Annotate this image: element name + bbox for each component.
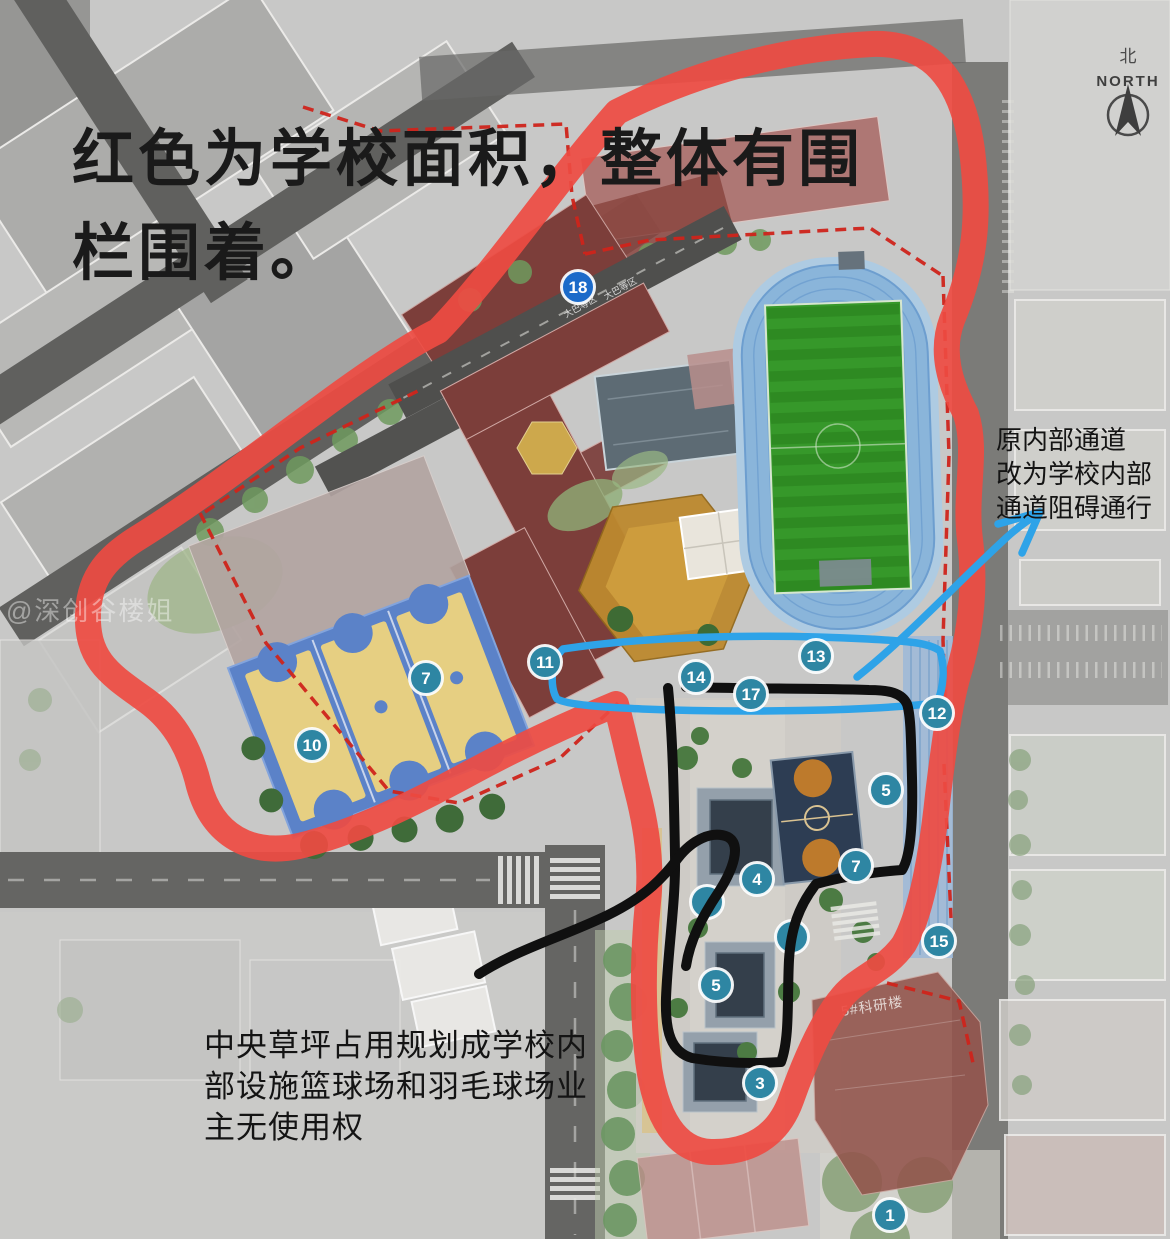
site-plan-image: 5#科研楼 大巴等区 大巴等区 18111413 bbox=[0, 0, 1170, 1239]
map-marker: 15 bbox=[923, 925, 956, 958]
note-passage-line1: 原内部通道 bbox=[996, 425, 1126, 455]
svg-text:12: 12 bbox=[928, 704, 947, 723]
map-marker: 14 bbox=[680, 661, 713, 694]
svg-text:4: 4 bbox=[752, 870, 762, 889]
note-lawn-line3: 主无使用权 bbox=[204, 1110, 364, 1145]
map-marker: 17 bbox=[735, 678, 768, 711]
svg-text:13: 13 bbox=[807, 647, 826, 666]
note-lawn-line1: 中央草坪占用规划成学校内 bbox=[204, 1028, 588, 1063]
map-marker: 11 bbox=[529, 646, 562, 679]
svg-text:7: 7 bbox=[851, 857, 860, 876]
map-marker: 1 bbox=[874, 1199, 907, 1232]
note-school-area-line1: 红色为学校面积，整体有围 bbox=[72, 125, 864, 194]
map-marker: 10 bbox=[296, 729, 329, 762]
compass-cn-label: 北 bbox=[1120, 47, 1137, 66]
svg-text:10: 10 bbox=[303, 736, 322, 755]
watermark: @深创谷楼姐 bbox=[6, 596, 174, 626]
map-marker: 5 bbox=[870, 774, 903, 807]
svg-text:5: 5 bbox=[881, 781, 890, 800]
map-marker: 13 bbox=[800, 640, 833, 673]
map-marker: 7 bbox=[840, 850, 873, 883]
svg-text:7: 7 bbox=[421, 669, 430, 688]
svg-text:11: 11 bbox=[536, 653, 554, 672]
svg-text:15: 15 bbox=[930, 932, 949, 951]
note-passage-line2: 改为学校内部 bbox=[996, 459, 1152, 489]
svg-text:1: 1 bbox=[885, 1206, 894, 1225]
map-marker: 18 bbox=[562, 271, 595, 304]
map-marker: 5 bbox=[700, 969, 733, 1002]
map-marker: 4 bbox=[741, 863, 774, 896]
note-school-area-line2: 栏围着。 bbox=[72, 219, 336, 288]
svg-text:17: 17 bbox=[742, 685, 761, 704]
annotated-site-plan: 5#科研楼 大巴等区 大巴等区 18111413 bbox=[0, 0, 1170, 1239]
note-lawn-line2: 部设施篮球场和羽毛球场业 bbox=[204, 1069, 588, 1104]
map-marker: 12 bbox=[921, 697, 954, 730]
map-marker: 7 bbox=[410, 662, 443, 695]
svg-text:3: 3 bbox=[755, 1074, 764, 1093]
map-marker: 3 bbox=[744, 1067, 777, 1100]
svg-text:18: 18 bbox=[569, 278, 588, 297]
svg-text:5: 5 bbox=[711, 976, 720, 995]
note-passage-line3: 通道阻碍通行 bbox=[996, 493, 1152, 523]
svg-text:14: 14 bbox=[687, 668, 706, 687]
